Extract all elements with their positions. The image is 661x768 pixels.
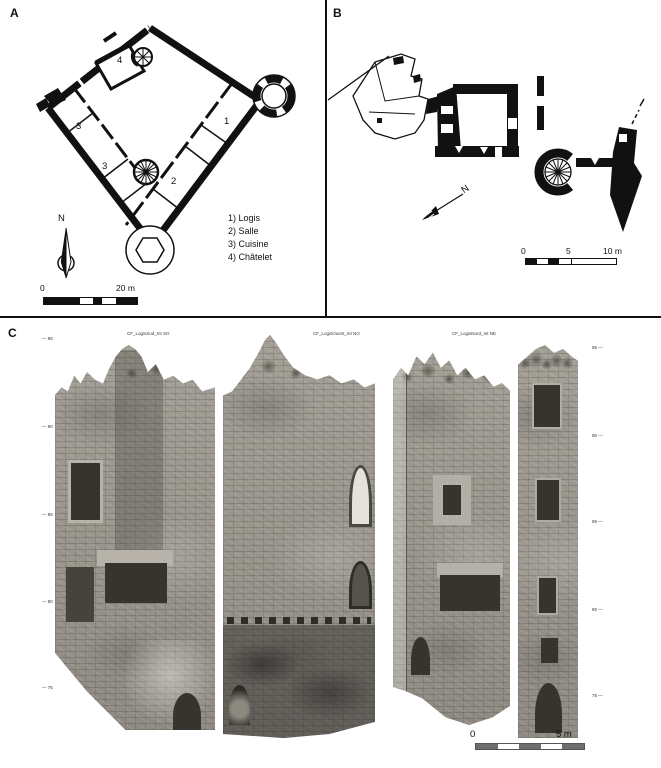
plan-a-gallery-line	[196, 60, 240, 89]
scalebar-b-start: 0	[521, 246, 526, 256]
elevation-mark: — 95	[42, 336, 53, 341]
elevation-mark: 95 —	[592, 345, 603, 350]
plan-b-upper-floor	[325, 0, 661, 316]
divider-horizontal	[0, 316, 661, 318]
window-opening	[71, 463, 100, 520]
room-number-logis: 1	[224, 116, 229, 127]
window-opening	[534, 385, 560, 427]
plan-b-bastion	[610, 99, 644, 232]
panel-c-letter: C	[8, 326, 17, 340]
door-opening	[66, 567, 94, 622]
window-opening	[539, 578, 556, 613]
arched-niche	[411, 637, 430, 675]
scalebar-a-end: 20 m	[116, 283, 135, 293]
hexagonal-tower	[126, 226, 174, 274]
spiral-stair-centre-icon	[134, 160, 158, 184]
window-opening	[443, 485, 461, 515]
room-number-cuisine-b: 3	[102, 161, 107, 172]
plan-a-legend: 1) Logis 2) Salle 3) Cuisine 4) Châtelet	[228, 212, 272, 264]
scalebar-c-end: 5 m	[556, 729, 572, 740]
room-number-cuisine-a: 3	[76, 121, 81, 132]
legend-item-salle: 2) Salle	[228, 225, 272, 238]
scalebar-a	[43, 297, 138, 305]
wall-return-band	[393, 345, 407, 695]
room-number-salle: 2	[171, 176, 176, 187]
elevation-mark: — 90	[42, 424, 53, 429]
vegetation-top	[223, 353, 375, 387]
plan-b-enclosure	[435, 84, 519, 157]
arched-door-opening	[535, 683, 562, 733]
vegetation-top	[393, 355, 510, 395]
orthophoto-south-wall	[55, 345, 215, 730]
legend-item-cuisine: 3) Cuisine	[228, 238, 272, 251]
legend-item-chatelet: 4) Châtelet	[228, 251, 272, 264]
putlog-hole-row	[227, 617, 371, 624]
scalebar-a-start: 0	[40, 283, 45, 293]
elevation-mark: 75 —	[592, 693, 603, 698]
fireplace-opening	[440, 575, 500, 611]
plan-b-wall-dashes	[537, 76, 544, 130]
window-opening	[537, 480, 559, 520]
spiral-stair-top-icon	[133, 48, 152, 66]
legend-item-logis: 1) Logis	[228, 212, 272, 225]
chimney-breast-shade	[115, 350, 163, 555]
orthophoto-label-ouest: CF_LogisOuest_Int NO	[313, 331, 360, 336]
plan-b-outline-building	[328, 54, 428, 139]
orthophoto-west-wall	[223, 335, 375, 738]
plan-a-ground-floor	[0, 0, 325, 316]
orthophoto-tower-strip	[518, 345, 578, 738]
scalebar-c	[475, 743, 585, 750]
north-arrow-b	[422, 194, 463, 220]
elevation-mark: — 75	[42, 685, 53, 690]
north-arrow-a	[58, 228, 74, 278]
orthophoto-north-wall	[393, 345, 510, 725]
figure-castle-study: A	[0, 0, 661, 768]
vegetation-top	[518, 351, 578, 373]
fireplace-opening	[105, 563, 167, 603]
scalebar-b-end: 10 m	[603, 246, 622, 256]
round-tower	[253, 75, 295, 117]
elevation-mark: — 85	[42, 512, 53, 517]
elevation-mark: 80 —	[592, 607, 603, 612]
buttress-highlight	[125, 640, 215, 730]
orthophoto-label-nord: CF_LogisNord_Int NE	[452, 331, 496, 336]
arched-window-through	[349, 465, 372, 527]
scalebar-b	[525, 258, 617, 265]
scalebar-b-mid: 5	[566, 246, 571, 256]
small-opening	[541, 638, 558, 663]
plan-b-stair-tower	[531, 145, 614, 199]
elevation-mark: — 80	[42, 599, 53, 604]
room-number-chatelet: 4	[117, 55, 122, 66]
elevation-mark: 85 —	[592, 519, 603, 524]
north-label-a: N	[58, 213, 65, 224]
orthophoto-label-sud: CF_LogisSud_Int SO	[127, 331, 170, 336]
arched-opening	[349, 561, 372, 609]
scalebar-c-start: 0	[470, 729, 475, 740]
elevation-mark: 90 —	[592, 433, 603, 438]
